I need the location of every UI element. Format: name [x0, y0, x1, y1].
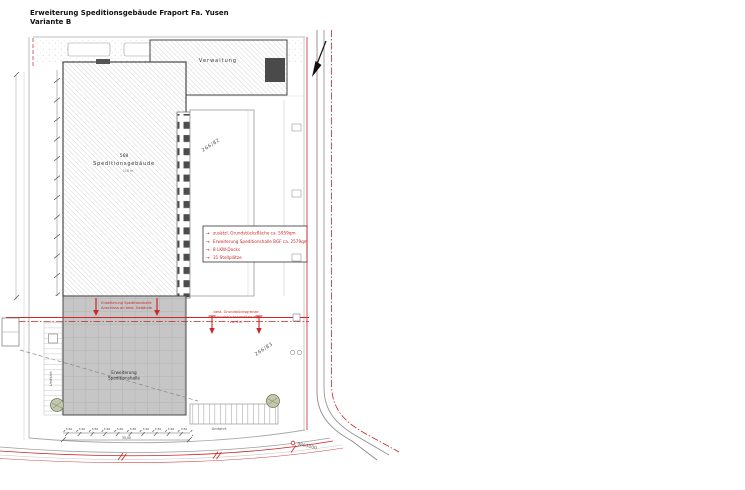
building-number: 568 [120, 153, 129, 159]
gate-symbol [292, 124, 301, 131]
dim-bay: 3,50 [143, 427, 150, 431]
dim-total: 35,00 [122, 436, 131, 440]
down-arrow-icon [256, 328, 261, 334]
drawing-title: Erweiterung Speditionsgebäude Fraport Fa… [30, 9, 229, 27]
dim-bay: 3,50 [92, 427, 99, 431]
utility-symbol [290, 350, 294, 354]
site-plan-canvas: Verwaltung 568 Speditionsgebäude 116 m 2… [0, 0, 745, 490]
boundary-note-line2: Grundstückserweiterung [214, 315, 258, 319]
paving-island [68, 43, 110, 56]
building-entrance [96, 59, 110, 64]
building-main: 568 Speditionsgebäude 116 m [63, 59, 186, 296]
title-line2: Variante B [30, 18, 229, 27]
legend-item: Erweiterung Speditionshalle BGF ca. 2579… [213, 239, 308, 244]
boundary-dashdot-red [332, 30, 400, 452]
umfahrt-left-label: Umfahrt [49, 371, 53, 386]
legend-item: 31 Stellplätze [213, 255, 242, 260]
down-arrow-icon [209, 328, 214, 334]
legend-item: zusätzl. Grundstücksfläche ca. 5959qm [213, 231, 296, 236]
station-tick [213, 452, 222, 460]
dim-bay: 3,50 [181, 427, 188, 431]
connection-note-line2: Anschluss an best. Gebäude [101, 306, 153, 310]
site-plan-page: Erweiterung Speditionsgebäude Fraport Fa… [0, 0, 745, 490]
umfahrt-bottom-label: Umfahrt [212, 427, 227, 431]
survey-point-icon [291, 441, 295, 445]
boundary-note-line3: ca. 4m [230, 320, 243, 324]
dim-bay: 3,50 [79, 427, 86, 431]
dim-bay: 3,50 [117, 427, 124, 431]
boundary-note-line1: best. Grundstücksgrenze [214, 310, 260, 314]
dim-bay: 3,50 [130, 427, 137, 431]
legend-arrow-icon: → [206, 231, 210, 237]
legend-arrow-icon: → [206, 248, 210, 254]
boundary-curve-red [0, 441, 333, 456]
parcel-label-lower: 266/83 [254, 341, 275, 357]
verwaltung-label: Verwaltung [199, 58, 237, 64]
connection-note-line1: Erweiterung Speditionshalle [101, 301, 152, 305]
dim-bay: 3,50 [104, 427, 111, 431]
title-line1: Erweiterung Speditionsgebäude Fraport Fa… [30, 9, 229, 18]
lane-marker [49, 334, 58, 343]
dim-bay: 3,50 [66, 427, 73, 431]
lkw-docks [177, 112, 190, 298]
legend-arrow-icon: → [206, 240, 210, 246]
building-existing: 266/82 [190, 100, 284, 296]
extension-label-line2: Speditionshalle [108, 376, 140, 381]
extension-label-line1: Erweiterung [111, 370, 137, 375]
dim-bay: 3,50 [155, 427, 162, 431]
gate-symbol [292, 190, 301, 197]
legend-item: 8 LKW-Docks [213, 247, 240, 252]
utility-symbol [297, 350, 301, 354]
building-name: Speditionsgebäude [93, 161, 155, 167]
boundary-marker [293, 314, 300, 321]
building-dark-annex [265, 58, 285, 82]
dim-bay: 3,50 [168, 427, 175, 431]
building-sub-label: 116 m [123, 169, 133, 173]
legend-arrow-icon: → [206, 256, 210, 262]
gate-symbol [292, 254, 301, 261]
